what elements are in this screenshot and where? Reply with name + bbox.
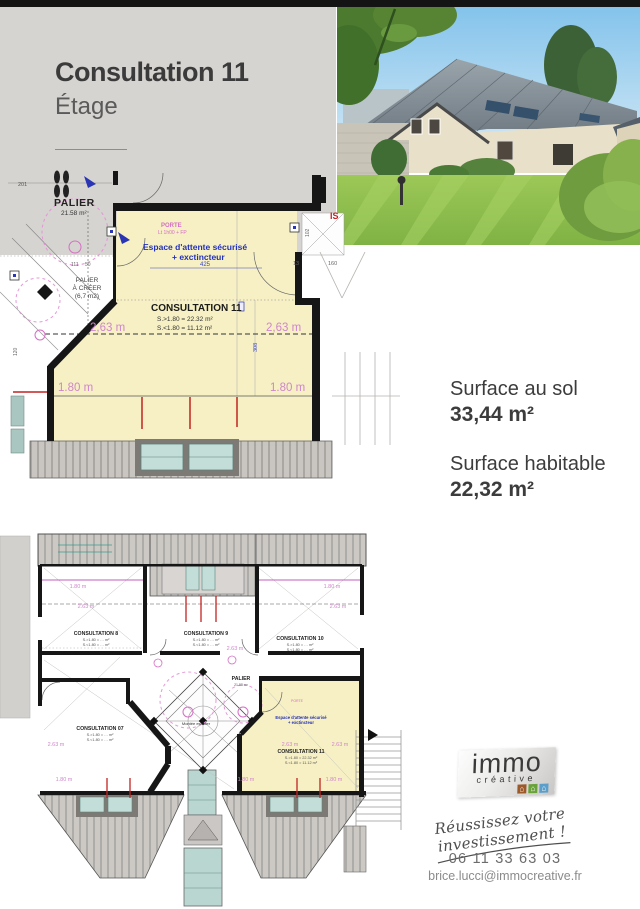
svg-text:2.63 m: 2.63 m — [330, 604, 347, 610]
room8-label: CONSULTATION 8 — [74, 631, 118, 637]
living-surface-label: Surface habitable — [450, 453, 606, 476]
svg-text:PALIER: PALIER — [76, 277, 99, 284]
room9-label: CONSULTATION 9 — [184, 631, 228, 637]
page-title: Consultation 11 — [55, 57, 249, 88]
house-icon-green: ⌂ — [528, 784, 537, 793]
svg-text:2.63 m: 2.63 m — [227, 646, 244, 652]
room10-label: CONSULTATION 10 — [276, 636, 323, 642]
svg-text:S.<1.80 = … m²: S.<1.80 = … m² — [87, 738, 115, 742]
svg-text:1.80 m: 1.80 m — [326, 777, 343, 783]
neighbour-lines — [320, 252, 400, 445]
svg-text:1.80 m: 1.80 m — [56, 777, 73, 783]
svg-text:21.58 m²: 21.58 m² — [61, 210, 87, 217]
living-surface-value: 22,32 m² — [450, 478, 606, 502]
svg-text:S.>1.80 = 22.32 m²: S.>1.80 = 22.32 m² — [157, 316, 213, 323]
svg-text:2.63 m: 2.63 m — [78, 604, 95, 610]
dormer-window-2 — [202, 566, 215, 590]
house-icon-brown: ⌂ — [517, 784, 526, 793]
skylight-r2 — [298, 797, 322, 812]
svg-text:S.<1.80 = 11.12 m²: S.<1.80 = 11.12 m² — [285, 761, 318, 765]
logo-text-immo: immo — [458, 749, 556, 776]
palier-label: PALIER — [54, 197, 95, 209]
svg-text:S.>1.80 = 22.32 m²: S.>1.80 = 22.32 m² — [285, 756, 318, 760]
stair-edge-2 — [11, 429, 24, 453]
dim-263-left: 2,63 m — [90, 322, 125, 334]
montee-label: Montée escalier — [182, 721, 211, 726]
svg-text:S.>1.80 = … m²: S.>1.80 = … m² — [193, 638, 221, 642]
phone-number: 06 11 33 63 03 — [415, 851, 595, 867]
svg-text:(6,7 m2): (6,7 m2) — [75, 293, 99, 300]
dormer-window — [186, 566, 199, 590]
top-black-bar — [0, 0, 640, 7]
title-divider — [55, 149, 127, 150]
svg-text:S.>1.80 = … m²: S.>1.80 = … m² — [83, 638, 111, 642]
svg-text:PORTE: PORTE — [291, 699, 304, 703]
svg-text:S.<1.80 = … m²: S.<1.80 = … m² — [193, 643, 221, 647]
svg-text:1.80 m: 1.80 m — [324, 584, 341, 590]
svg-text:308: 308 — [253, 343, 259, 352]
skylight-l1 — [80, 797, 104, 812]
overview-floorplan: CONSULTATION 8 S.>1.80 = … m² S.<1.80 = … — [0, 527, 406, 909]
logo-house-icons: ⌂ ⌂ ⌂ — [517, 784, 548, 794]
svg-text:425: 425 — [200, 262, 211, 268]
svg-text:S.<1.80 = … m²: S.<1.80 = … m² — [287, 648, 315, 652]
house-icon-blue: ⌂ — [539, 784, 548, 793]
stairs-base — [344, 826, 366, 872]
stairs-arrow — [368, 729, 378, 741]
svg-text:120: 120 — [13, 347, 19, 356]
skylight-r1 — [270, 797, 294, 812]
espace-label: Espace d'attente sécurisé — [143, 242, 247, 252]
main-floorplan: 201 PALIER 21.58 m² PORTE Lt 1h00 + FP E… — [0, 165, 400, 525]
floor-surface-value: 33,44 m² — [450, 403, 606, 427]
dim-180-right: 1.80 m — [270, 382, 305, 394]
svg-text:2.63 m: 2.63 m — [48, 742, 65, 748]
arrow-icon — [84, 176, 96, 188]
stair-edge — [11, 396, 24, 426]
floor-surface-label: Surface au sol — [450, 378, 606, 401]
svg-text:1.80 m: 1.80 m — [70, 584, 87, 590]
page-subtitle: Étage — [55, 93, 118, 121]
dim-180-left: 1.80 m — [58, 382, 93, 394]
email-address: brice.lucci@immocreative.fr — [400, 869, 610, 883]
svg-text:2.63 m: 2.63 m — [282, 742, 299, 748]
svg-text:160: 160 — [328, 261, 337, 267]
chimney-top — [188, 770, 216, 815]
room-title: CONSULTATION 11 — [151, 303, 242, 314]
svg-text:+ exctincteur: + exctincteur — [172, 252, 225, 262]
is-label: IS — [330, 211, 339, 221]
svg-text:111: 111 — [71, 262, 79, 268]
brochure-page: Consultation 11 Étage — [0, 0, 640, 909]
skylight-l2 — [108, 797, 132, 812]
svg-text:13: 13 — [293, 261, 299, 267]
adjacent-building — [0, 536, 30, 718]
gable-window-2 — [429, 119, 440, 134]
svg-text:+ exctincteur: + exctincteur — [288, 720, 314, 725]
room07-label: CONSULTATION 07 — [76, 726, 123, 732]
svg-text:S.<1.80 = … m²: S.<1.80 = … m² — [83, 643, 111, 647]
svg-text:S.<1.80 = 11.12 m²: S.<1.80 = 11.12 m² — [157, 325, 213, 332]
room11-label: CONSULTATION 11 — [278, 749, 325, 755]
svg-text:201: 201 — [18, 182, 27, 188]
svg-text:S.>1.80 = … m²: S.>1.80 = … m² — [287, 643, 315, 647]
chimney-bottom — [184, 848, 222, 906]
palier-overview: PALIER — [232, 676, 251, 682]
lamp-post — [400, 183, 403, 205]
dim-263-right: 2,63 m — [266, 322, 301, 334]
svg-text:1.80 m: 1.80 m — [238, 777, 255, 783]
svg-text:102: 102 — [305, 228, 311, 237]
porte-label: PORTE — [161, 223, 182, 229]
window — [497, 141, 513, 160]
footprints-icon — [54, 171, 69, 198]
immo-creative-logo: immo créative ⌂ ⌂ ⌂ — [457, 747, 556, 797]
svg-text:À CRÉER: À CRÉER — [73, 283, 102, 292]
svg-text:50: 50 — [85, 262, 91, 268]
dark-door — [553, 144, 573, 165]
gable-window — [411, 119, 422, 134]
svg-text:21.58 m²: 21.58 m² — [234, 683, 249, 687]
surface-info: Surface au sol 33,44 m² Surface habitabl… — [450, 378, 606, 502]
svg-text:2.63 m: 2.63 m — [332, 742, 349, 748]
svg-text:Lt 1h00 + FP: Lt 1h00 + FP — [158, 230, 187, 236]
svg-text:S.>1.80 = … m²: S.>1.80 = … m² — [87, 733, 115, 737]
chamfer-left-3 — [150, 764, 168, 792]
